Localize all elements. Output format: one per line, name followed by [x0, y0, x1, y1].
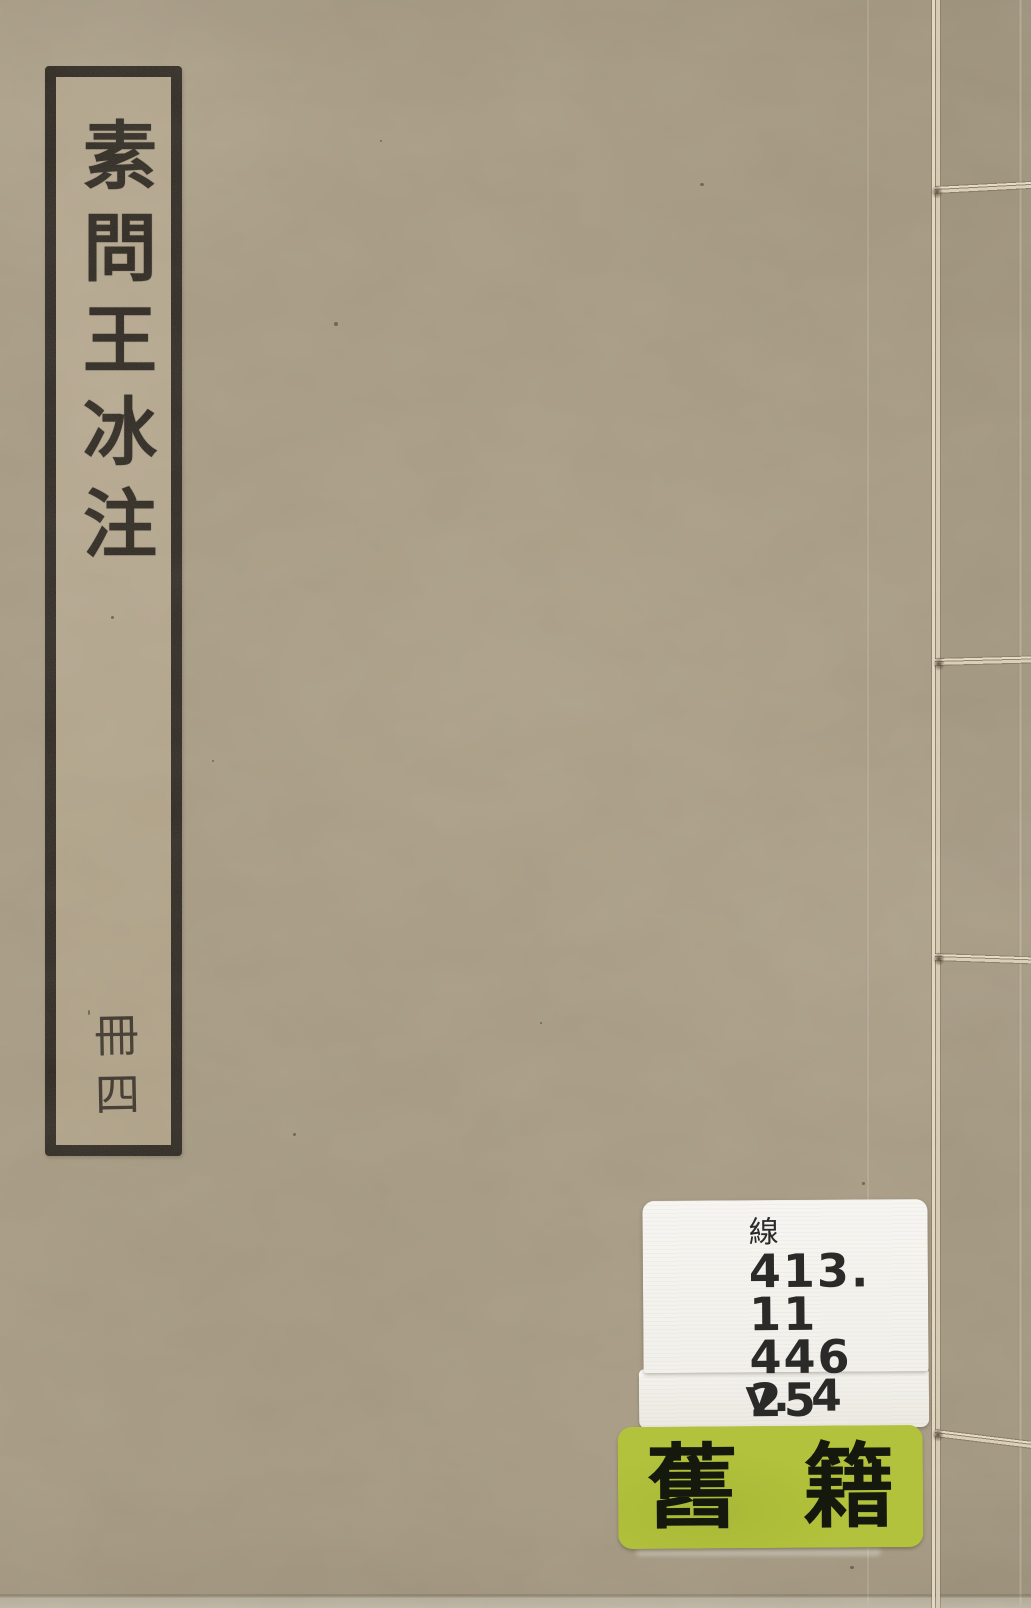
paper-speck: [862, 1182, 865, 1185]
old-books-label-char-left: 舊: [646, 1441, 739, 1534]
old-books-label-char-right: 籍: [803, 1440, 896, 1533]
volume-number-text: 冊四: [89, 1012, 136, 1131]
book-bottom-page-edge: [0, 1594, 1031, 1608]
call-number-line: 413. 11: [749, 1249, 929, 1336]
paper-speck: [850, 1566, 854, 1569]
binding-stitch-thread-4: [935, 1429, 1031, 1449]
binding-stitch-thread-3: [935, 953, 1031, 964]
paper-speck: [111, 616, 114, 619]
paper-speck: [88, 1010, 90, 1015]
cover-edge-fold-line: [1018, 0, 1023, 1608]
stitch-hole-4: [932, 1428, 944, 1442]
spine-shade: [941, 0, 1031, 1608]
title-label: 素問王冰注 冊四: [45, 66, 182, 1156]
old-books-label: 舊 籍: [618, 1425, 924, 1549]
binding-thread-vertical: [931, 0, 941, 1608]
call-number-sticker: 線 413. 11 446 25: [642, 1199, 928, 1373]
call-number-line: 25: [750, 1378, 929, 1422]
binding-stitch-thread-2: [935, 655, 1031, 666]
tape-sheen: [636, 1548, 881, 1556]
book-title-text: 素問王冰注: [77, 117, 151, 577]
paper-speck: [540, 1022, 542, 1024]
paper-speck: [700, 183, 704, 186]
stitch-hole-2: [933, 657, 945, 671]
stitch-hole-1: [931, 185, 943, 199]
stitch-hole-3: [933, 952, 945, 966]
paper-speck: [212, 760, 214, 762]
book-cover: 素問王冰注 冊四 線 413. 11 446 25 v. 4 舊 籍: [0, 0, 1031, 1608]
paper-speck: [380, 140, 382, 142]
binding-stitch-thread-1: [935, 181, 1031, 194]
paper-speck: [293, 1133, 296, 1136]
paper-speck: [334, 322, 338, 326]
